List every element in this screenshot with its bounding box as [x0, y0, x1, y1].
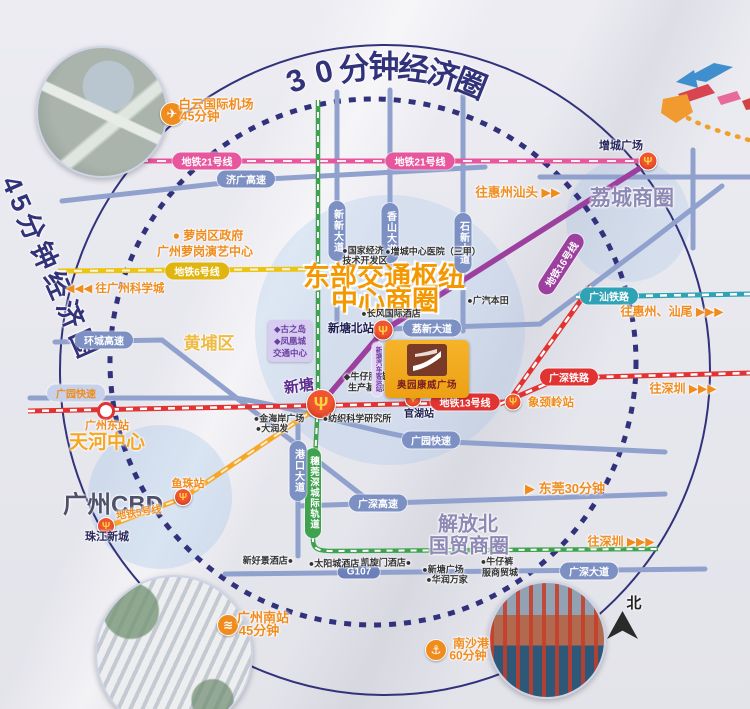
guangshen-rail-label: 广深铁路 [540, 369, 598, 386]
road-jiguang-label: 济广高速 [217, 171, 275, 188]
project-marker: 奥园康威广场 [385, 340, 469, 398]
poi-textile-institute: ●纺织科学研究所 [323, 414, 391, 423]
road-lixin-label: 荔新大道 [403, 320, 461, 337]
area-jiefangbei-line2: 国贸商圈 [429, 537, 509, 558]
dir-shenzhen-rail: 往深圳 ▶▶▶ [649, 383, 716, 396]
station-guanhu-label: 官湖站 [404, 410, 434, 421]
metro-line21-label-a: 地铁21号线 [172, 153, 241, 170]
road-guangshen-expwy-label: 广深高速 [349, 495, 407, 512]
train-icon: ≋ [217, 614, 239, 636]
intercity-rail-label: 穗莞深城际轨道 [305, 448, 321, 538]
station-xintang-north-label: 新塘北站 [328, 323, 374, 335]
dir-shenzhen-intercity: 往深圳 ▶▶▶ [587, 536, 654, 549]
poi-luogang-gov: ● 萝岗区政府 [173, 230, 244, 243]
compass-north-label: 北 [626, 596, 641, 612]
poi-huarun: ●华润万家 [426, 575, 467, 584]
transport-box-line2: ◆凤凰城 [273, 335, 307, 347]
dir-huizhou-shanwei: 往惠州、汕尾 ▶▶▶ [620, 306, 723, 319]
station-yuzhu-label: 鱼珠站 [172, 479, 205, 491]
nansha-time-line2: 60分钟 [449, 650, 486, 663]
station-gz-east-label: 广州东站 [85, 421, 129, 433]
road-huancheng-label: 环城高速 [75, 332, 133, 349]
metro-line21-label-b: 地铁21号线 [385, 153, 454, 170]
transport-center-box: ◆古之岛 ◆凤凰城 交通中心 [268, 320, 312, 362]
metro-station-icon-xintang-north [373, 320, 394, 341]
area-jiefangbei-line1: 解放北 [438, 515, 498, 536]
airport-time-line2: 45分钟 [181, 110, 220, 123]
poi-suncity-hotel: ●太阳城酒店 [309, 559, 359, 568]
area-licheng: 荔城商圈 [590, 188, 674, 210]
port-anchor-icon: ⚓ [425, 639, 447, 661]
metro-line6-label: 地铁6号线 [165, 263, 229, 280]
area-tianhe: 天河中心 [69, 433, 145, 453]
gz-east-station-node [97, 402, 115, 420]
road-gangkou-label: 港口大道 [290, 441, 307, 501]
guangshan-rail-label: 广汕铁路 [580, 288, 638, 305]
area-huangpu: 黄埔区 [184, 335, 235, 353]
south-station-time-line2: 45分钟 [239, 624, 279, 638]
poi-hospital: ●增城中心医院（三甲） [385, 247, 480, 256]
dir-huizhou-shantou: 往惠州汕头 ▶▶ [475, 186, 560, 199]
station-xiangjingling-label: 象颈岭站 [528, 397, 574, 409]
station-zhujiang-label: 珠江新城 [85, 532, 129, 544]
poi-xinhaojing-hotel: 新好景酒店● [243, 556, 293, 565]
poi-changfeng-hotel: ●长风国际酒店 [361, 309, 420, 318]
transport-box-line3: 交通中心 [273, 347, 307, 359]
location-map: 30分钟经济圈 45分钟经济圈 东部交通枢纽 中心商圈 荔城商圈 黄埔区 天河中… [0, 0, 750, 709]
poi-denim-mall-line1: ●牛仔裤 [481, 557, 513, 566]
bus-station-label: 新塘汽车客运站 [372, 342, 382, 396]
poi-kaixuanmen-hotel: 凯旋门酒店● [361, 558, 411, 567]
metro-station-icon-zengcheng [639, 152, 658, 171]
airport-photo [36, 46, 168, 178]
port-photo [488, 581, 606, 699]
project-logo [407, 344, 447, 376]
dir-dongguan: ▶ 东莞30分钟 [525, 482, 605, 496]
poi-gac-honda: ●广汽本田 [467, 296, 508, 305]
road-guangyuan-label-east: 广园快速 [402, 432, 460, 449]
dir-science-city: ◀◀◀ 往广州科学城 [66, 283, 165, 295]
poi-dev-zone-line2: 技术开发区 [342, 256, 387, 265]
poi-denim-mall-line2: 服商贸城 [482, 568, 518, 577]
station-zengcheng-label: 增城广场 [599, 141, 643, 153]
project-name: 奥园康威广场 [385, 377, 469, 391]
road-guangyuan-label-west: 广园快速 [47, 385, 105, 402]
road-guangshen-ave-label: 广深大道 [560, 563, 618, 580]
poi-darunfa: ●大润发 [256, 424, 288, 433]
poi-luogang-art: 广州萝岗演艺中心 [157, 246, 253, 259]
metro-station-icon-xiangjingling [505, 394, 522, 411]
road-shixin-label: 石新大道 [455, 213, 472, 273]
transport-box-line1: ◆古之岛 [273, 323, 307, 335]
